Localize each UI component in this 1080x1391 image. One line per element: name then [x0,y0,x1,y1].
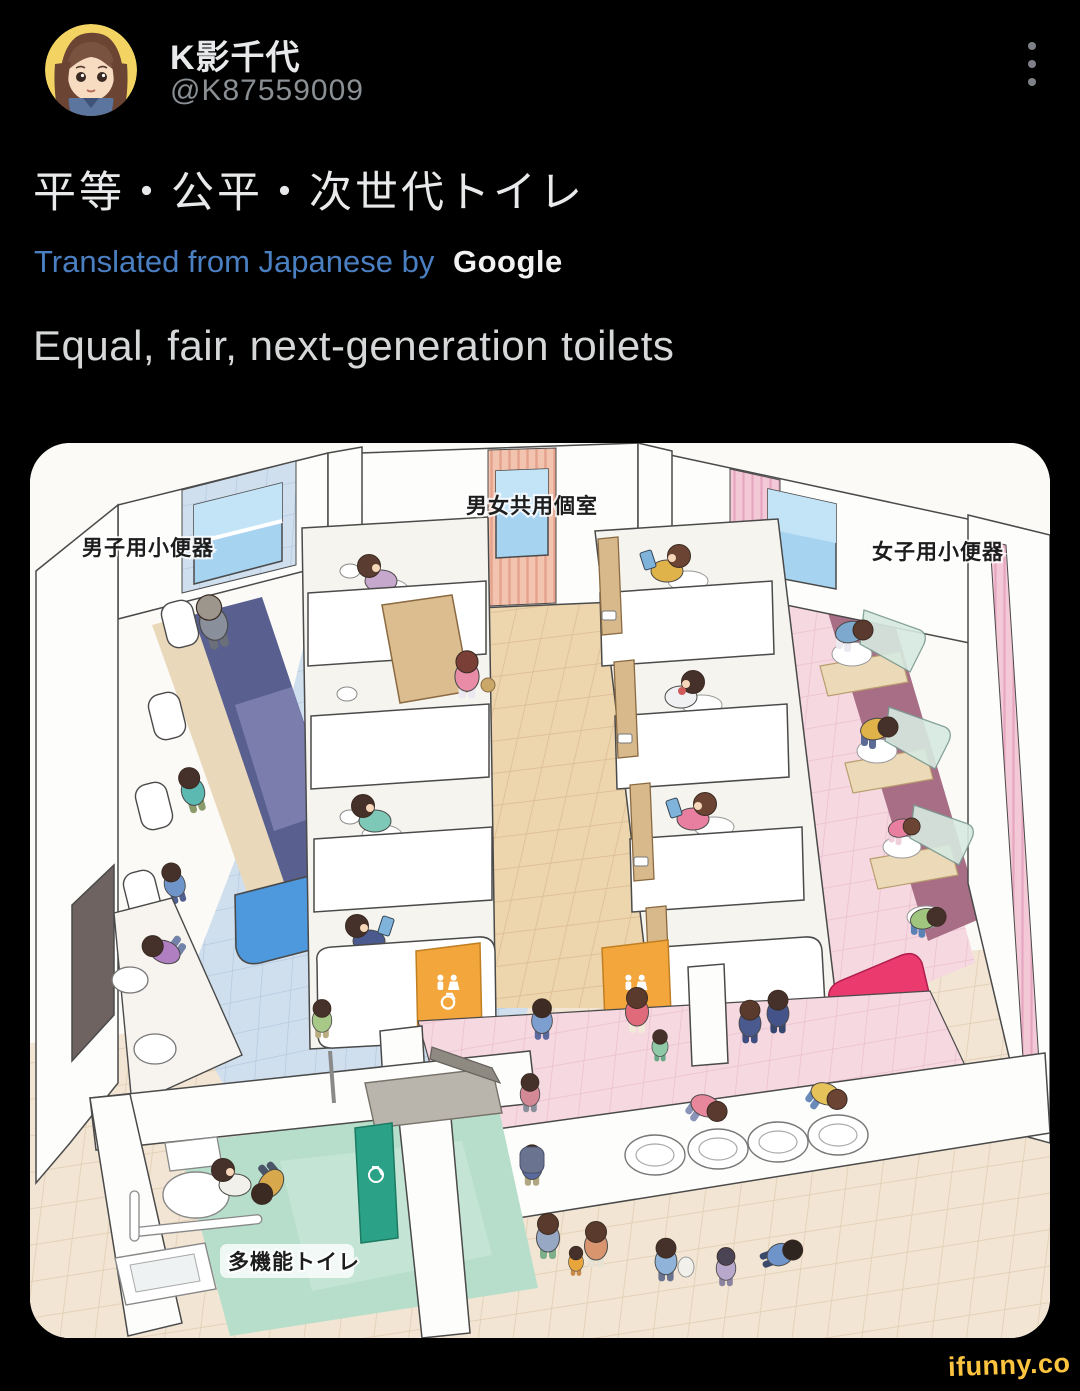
tweet-text-translated: Equal, fair, next-generation toilets [33,322,674,370]
tweet-media[interactable]: 男子用小便器 男女共用個室 女子用小便器 多機能トイレ [30,443,1050,1338]
label-shared-stalls: 男女共用個室 [466,494,598,518]
bathroom-illustration: 男子用小便器 男女共用個室 女子用小便器 多機能トイレ [30,443,1050,1338]
kebab-menu-icon[interactable] [1022,42,1042,86]
ifunny-watermark: ifunny.co [947,1348,1071,1383]
translation-notice[interactable]: Translated from Japanese by Google [34,244,563,280]
ifunny-post-page: K影千代 @K87559009 平等・公平・次世代トイレ Translated … [0,0,1080,1391]
google-brand-label: Google [453,244,563,279]
author-name[interactable]: K影千代 [170,30,301,79]
tweet-text-japanese: 平等・公平・次世代トイレ [33,158,585,220]
translated-from-label[interactable]: Translated from Japanese by [34,244,434,279]
avatar[interactable] [45,24,137,116]
author-handle[interactable]: @K87559009 [170,74,364,108]
label-womens-urinals: 女子用小便器 [872,540,1004,564]
shared-stall-block-left [302,517,496,1049]
label-mens-urinals: 男子用小便器 [82,536,214,560]
avatar-art [45,24,137,116]
label-multifunction-toilet: 多機能トイレ [228,1250,360,1274]
